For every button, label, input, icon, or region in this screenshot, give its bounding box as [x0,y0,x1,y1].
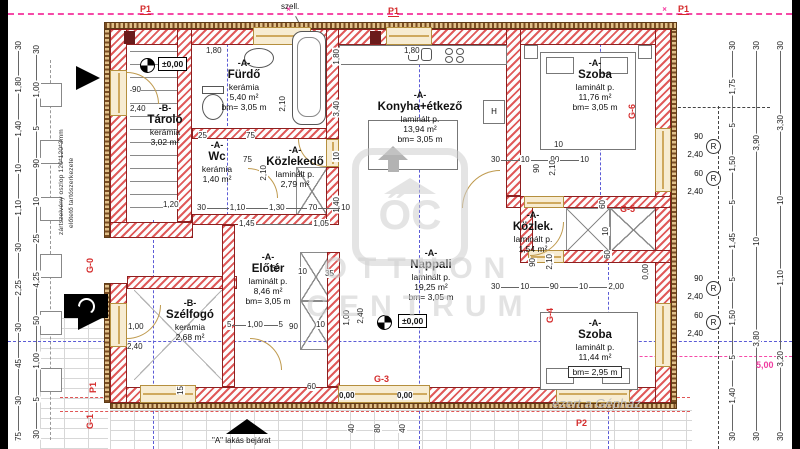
dim-row-2: 1,451,05 [238,219,330,229]
dim: 60 [307,382,316,391]
dim-chain-right-a: 301,7551,5051,4551,5051,4030 [726,40,738,442]
dim: 10 [601,227,610,236]
dim: 10 [554,140,563,149]
dimension-value: 1,50 [728,309,737,327]
dimension-value: 10 [520,155,531,165]
dimension-value: 1,50 [728,155,737,173]
dimension-value: 90 [549,282,560,292]
wall-furdo-wc [192,128,327,139]
screen-edge-right [792,0,800,449]
dimension-value: 3,90 [752,134,761,152]
ref-label-p1: P1 [678,4,689,15]
window-dims-top: 902,40602,40 [677,132,703,196]
dimension-value: 3,40 [332,100,341,118]
column-note-2: előtető tartószerkezete [68,108,75,228]
entrance-arrow-main-icon [78,306,102,330]
dimension-value: 30 [752,40,761,51]
dimension-value: 30 [490,155,501,165]
dimension-value: 60 [677,169,703,178]
dim: 40 [398,424,407,433]
dimension-value: 1,10 [14,199,23,217]
watermark-bottom: ezert a Gépház [552,396,641,411]
entrance-arrow-a-icon [226,419,268,434]
dimension-value: 2,40 [677,292,703,301]
dim: 2,40 [356,308,365,324]
dim: 0,00 [641,264,650,280]
dimension-value: 30 [14,40,23,51]
dimension-value: 2,25 [14,279,23,297]
dimension-value: 30 [752,431,761,442]
dim: 75 [246,131,255,140]
room-label-tarolo: -B-Tároló kerámia3,02 m² [128,103,202,147]
dimension-value: 90 [677,274,703,283]
ref-label-g4: G-4 [545,308,555,323]
dimension-value: 10 [340,203,351,213]
dimension-value: 30 [776,40,785,51]
dimension-value: 10 [579,155,590,165]
window-dims-bottom: 902,40602,40 [677,274,703,338]
room-label-wc: -A-Wc kerámia1,40 m² [192,140,242,184]
dimension-value: 30 [490,282,501,292]
dim: 90 [132,85,141,94]
room-label-furdo: -A-Fürdő kerámia5,40 m² bm= 3,05 m [198,58,290,112]
dimension-value: 5 [728,199,737,205]
window-szoba1 [655,128,671,192]
dimension-value: 30 [14,322,23,333]
dimension-value: 30 [728,431,737,442]
dim: 60 [598,200,607,209]
dim-chain-left-outer: 301,801,40101,10302,2530453075 [12,40,24,442]
vent-arrow-stem [388,160,399,172]
level-marker-icon [377,315,392,330]
dimension-value: 1,00 [32,352,41,370]
dim: 2,10 [545,254,554,270]
dimension-value: 5 [32,396,41,402]
room-label-kozlekedo: -A-Közlekedő laminált p.2,79 m² [256,145,334,189]
dimension-value: 30 [14,395,23,406]
dim: 10 [316,320,325,329]
canopy-post [40,254,62,278]
vent-arrow-icon [378,146,408,160]
dim: 75 [243,155,252,164]
dimension-value: 10 [32,196,41,207]
dim-chain-right-b: 303,90103,8030 [750,40,762,442]
dim: 80 [373,424,382,433]
bathtub-inner [297,37,321,117]
dim: 40 [347,424,356,433]
room-label-eloter: -A-Előtér laminált p.8,46 m² bm= 3,05 m [228,252,308,306]
terrace-level: 0,00 [397,391,413,400]
terrace-level: 0,00 [339,391,355,400]
dimension-value: 5 [278,320,284,330]
dimension-value: 60 [677,311,703,320]
stove-burner [445,56,453,63]
wall-konyha-szoba1 [506,29,521,196]
nightstand [524,45,538,59]
canopy-post [40,368,62,392]
ref-label-p1: P1 [388,6,399,17]
dimension-value: 30 [32,44,41,55]
ref-label-p2: P2 [576,418,587,428]
dimension-value: 5 [32,125,41,131]
ref-label-p1: P1 [140,4,151,15]
dim: 1,80 [404,46,420,55]
dimension-value: 25 [32,233,41,244]
wall-tarolo-bottom [110,222,193,238]
stove-burner [445,48,453,55]
dim-chain-right-c: 303,30101,103,2030 [774,40,786,442]
dim-chain-left-inner: 301,0059010254,25501,00530 [30,44,42,440]
steel-column [370,31,381,44]
dimension-value: 3,30 [776,114,785,132]
dimension-value: 1,80 [14,76,23,94]
dimension-value: 45 [14,358,23,369]
dimension-value: 1,30 [268,203,286,213]
shutter-badge: R [706,171,721,186]
dim: 2,10 [548,160,557,176]
room-label-kozlek: -A-Közlek. laminált p.1,54 m² [498,210,568,254]
dim-row-4: 301090102,00 [490,282,625,292]
dimension-value: 1,75 [728,78,737,96]
level-value: ±0,00 [158,57,187,71]
nightstand [638,45,652,59]
shutter-badge: R [706,281,721,296]
dimension-value: 5 [728,276,737,282]
dimension-value: 3,20 [776,350,785,368]
section-line-pink [8,13,792,15]
screen-edge-left [0,0,8,449]
door-swing [462,170,500,208]
ref-label-g5: G-5 [620,204,635,214]
room-label-szoba2: -A-Szoba laminált p.11,44 m² bm= 2,95 m [540,318,650,381]
dimension-value: 30 [32,429,41,440]
dimension-value: 1,45 [728,232,737,250]
door-tarolo [110,70,127,116]
sink-bowl [421,48,432,61]
room-label-szelfogo: -B-Szélfogó kerámia2,68 m² [144,298,236,342]
stove-burner [456,48,464,55]
fridge-label: H [491,107,497,116]
dimension-value: 10 [752,236,761,247]
dimension-value: 1,80 [332,48,341,66]
dim-magenta: 5,00 [756,360,774,370]
dimension-value: 70 [307,203,318,213]
window-konyha [386,27,432,45]
dim: 35 [325,269,334,278]
wall-szelfogo-top [127,276,237,289]
dim: 90 [528,258,537,267]
dimension-value: 10 [14,163,23,174]
entrance-label: "A" lakás bejárat [212,436,271,445]
dimension-value: 1,10 [776,269,785,287]
dimension-value: 4,25 [32,271,41,289]
dimension-value: 2,40 [677,187,703,196]
dimension-value: 50 [32,315,41,326]
dimension-value: 1,00 [32,81,41,99]
dimension-value: 90 [677,132,703,141]
level-marker-icon [140,58,155,73]
door-swing [250,338,282,370]
dimension-value: 30 [14,242,23,253]
dimension-value: 2,40 [677,150,703,159]
wall-exterior-left-upper [110,29,127,238]
boundary-dashed-line [718,106,719,449]
dimension-value: 30 [776,431,785,442]
steel-column [124,31,135,44]
ref-label-g1: G-1 [85,414,95,429]
dim: 1,20 [163,200,179,209]
watermark-logo-text: ŐC [379,194,442,236]
insulation-right [671,29,677,403]
room-label-konyha: -A-Konyha+étkező laminált p.13,94 m² bm=… [355,90,485,144]
watermark-roof-icon [384,178,436,194]
window-szelfogo [140,385,196,403]
floor-plan-canvas: H -B-Tároló kerámia3,02 m² -A-Fürdő kerá… [0,0,800,449]
dimension-value: 10 [578,282,589,292]
dim: 1,00 [128,322,144,331]
dimension-value: 10 [776,195,785,206]
level-value: ±0,00 [398,314,427,328]
entrance-arrow-tarolo-icon [76,66,100,90]
dim: 1,80 [206,46,222,55]
entrance-door [110,303,127,347]
room-label-nappali: -A-Nappali laminált p.19,25 m² bm= 3,05 … [385,248,477,302]
dimension-value: 1,40 [14,120,23,138]
dim: 1,00 [342,310,351,326]
fridge: H [483,100,505,124]
ref-label-g3: G-3 [374,374,389,384]
ref-label-g6: G-6 [627,104,637,119]
dim: 15 [176,386,185,395]
dim: 2,40 [127,342,143,351]
dimension-value: 5 [728,354,737,360]
dimension-value: 2,00 [607,282,625,292]
dimension-value: 2,40 [677,329,703,338]
dimension-value: 3,80 [752,330,761,348]
stove-burner [456,56,464,63]
canopy-post [40,311,62,335]
dimension-value: 1,00 [246,320,264,330]
dim: 60 [603,250,612,259]
dimension-value: 30 [196,203,207,213]
dim-row-1: 301,101,307010 [196,203,351,213]
column-note-1: zártszelvény oszlop 120*120*3mm [58,100,65,235]
dimension-value: 75 [14,431,23,442]
dimension-value: 30 [728,40,737,51]
ref-label-p1: P1 [88,382,98,393]
dimension-value: 1,05 [312,219,330,229]
shutter-badge: R [706,315,721,330]
dimension-value: 90 [32,158,41,169]
ref-label-g0: G-0 [85,258,95,273]
dimension-value: 1,40 [728,387,737,405]
shaft [610,208,657,252]
dim: 90 [532,164,541,173]
window-szoba2 [655,303,671,367]
dim: 90 [289,322,298,331]
canopy-dashed-line-2 [60,411,690,412]
dimension-value: 1,10 [229,203,247,213]
dimension-value: 10 [519,282,530,292]
dimension-value: 5 [728,122,737,128]
shutter-badge: R [706,139,721,154]
door-kozlek [524,196,564,208]
dimension-value: 1,45 [238,219,256,229]
